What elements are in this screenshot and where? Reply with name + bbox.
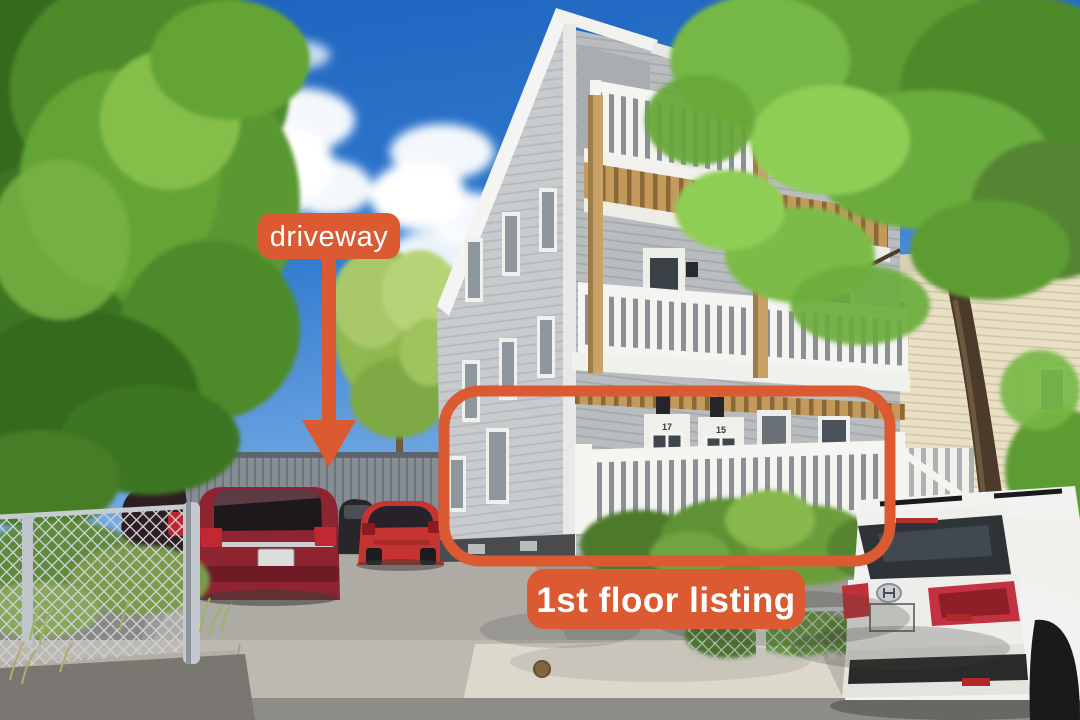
annotation-listing-label: 1st floor listing xyxy=(527,569,805,629)
door-number-left: 17 xyxy=(662,422,672,432)
arrow-stem xyxy=(322,254,336,428)
door-number-right: 15 xyxy=(716,425,726,435)
foreground-chainlink xyxy=(0,502,232,684)
red-suv xyxy=(196,487,340,606)
annotation-driveway-label: driveway xyxy=(258,213,400,259)
annotated-listing-photo: 17 15 xyxy=(0,0,1080,720)
listing-label-text: 1st floor listing xyxy=(536,581,795,620)
driveway-label-text: driveway xyxy=(270,221,388,253)
red-hatchback xyxy=(356,501,444,571)
